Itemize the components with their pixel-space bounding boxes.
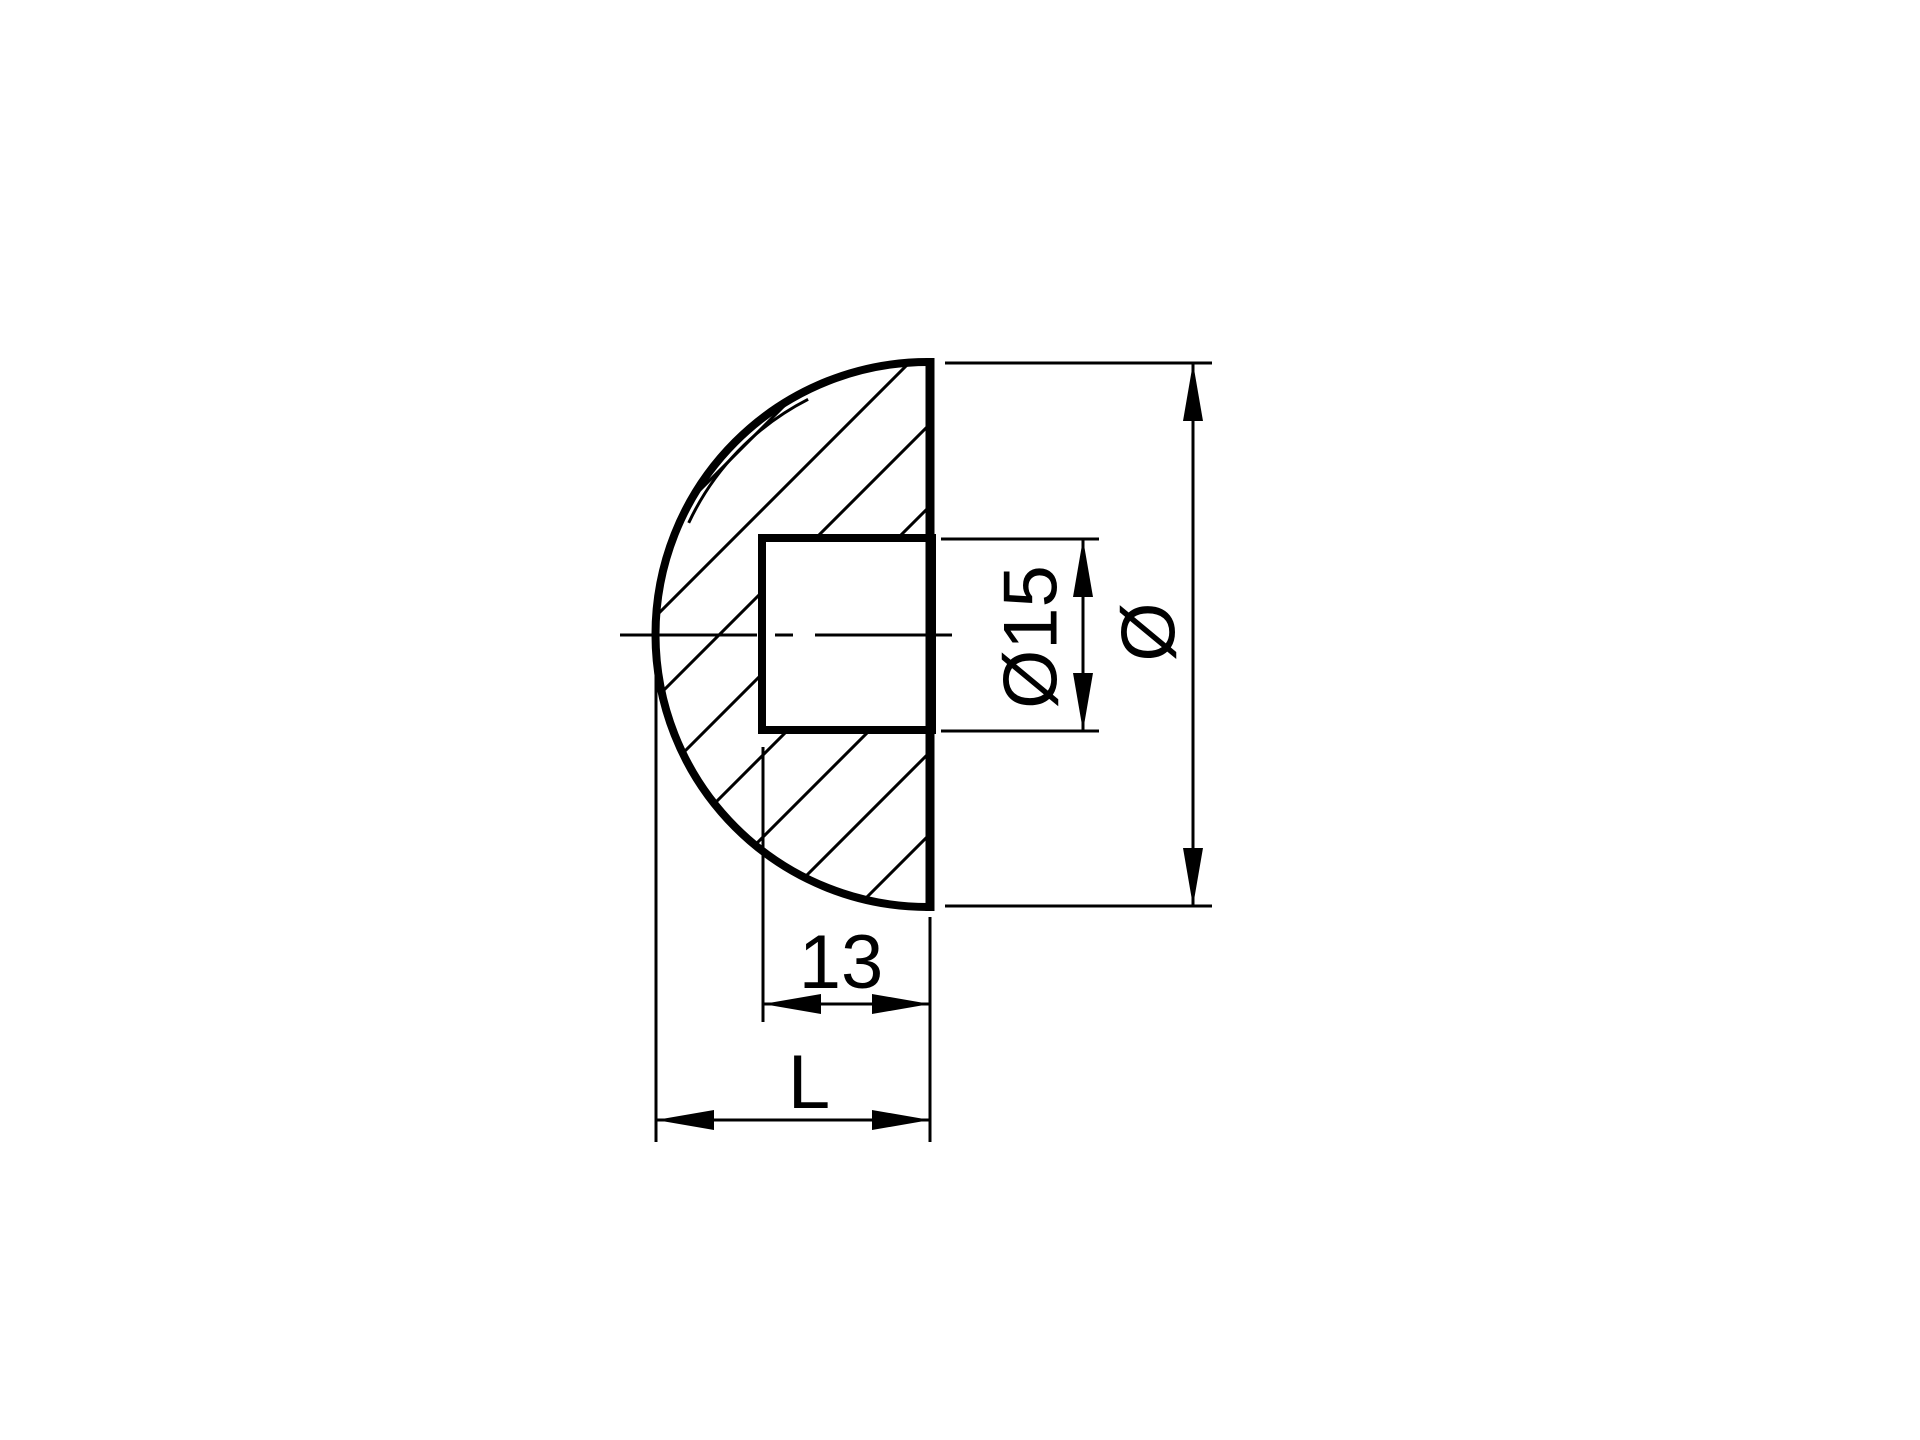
drawing-sheet: Ø Ø15 13 L: [0, 0, 1920, 1440]
arrow-up-icon: [1183, 363, 1203, 421]
dimension-overall-diameter: Ø: [945, 363, 1212, 906]
part-cross-section: [240, 330, 1516, 950]
arrow-down-icon: [1183, 848, 1203, 906]
arrow-up-icon: [1073, 539, 1093, 597]
arrow-down-icon: [1073, 673, 1093, 731]
arrow-left-icon: [656, 1110, 714, 1130]
technical-drawing: Ø Ø15 13 L: [0, 0, 1920, 1440]
overall-length-label: L: [788, 1040, 830, 1125]
bore-depth-label: 13: [799, 920, 884, 1005]
overall-diameter-label: Ø: [1107, 602, 1192, 661]
bore-diameter-label: Ø15: [989, 565, 1074, 709]
dimension-bore-diameter: Ø15: [941, 539, 1099, 731]
arrow-right-icon: [872, 1110, 930, 1130]
